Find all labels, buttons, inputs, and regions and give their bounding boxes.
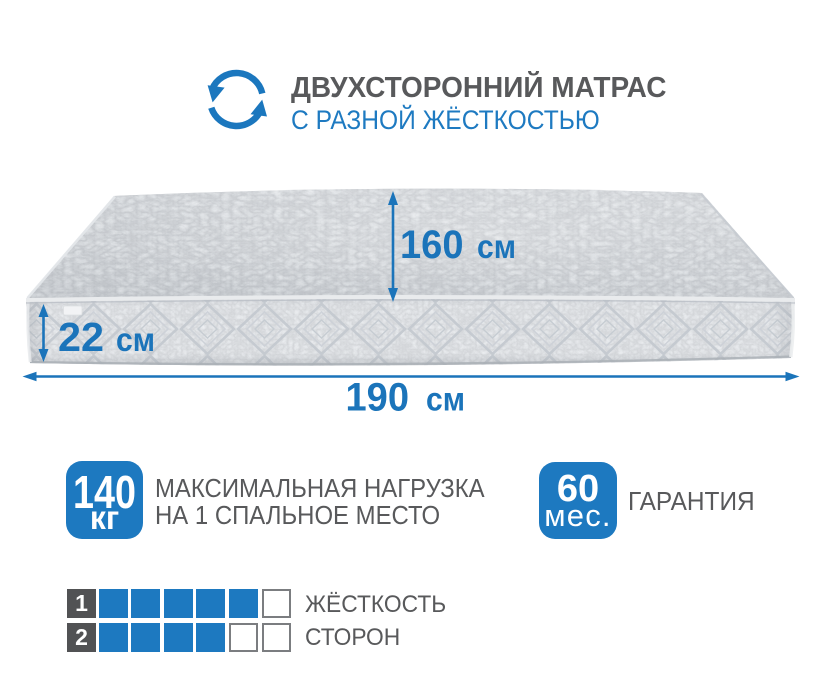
svg-text:160: 160 [400, 223, 464, 267]
svg-text:см: см [477, 228, 516, 265]
svg-text:22: 22 [58, 314, 104, 360]
svg-text:см: см [116, 321, 155, 358]
svg-text:190: 190 [346, 376, 410, 420]
svg-text:см: см [426, 381, 465, 418]
